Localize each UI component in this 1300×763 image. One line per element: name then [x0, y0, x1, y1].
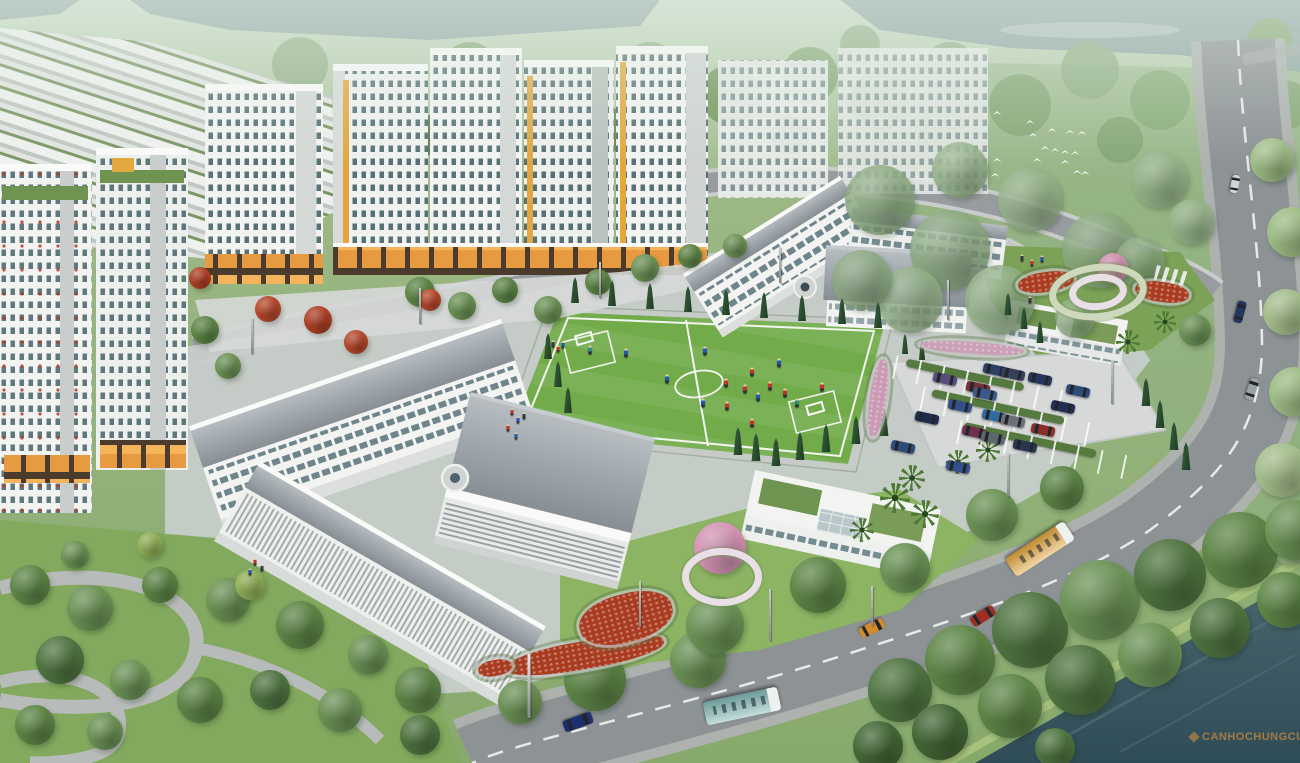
tree	[1060, 560, 1140, 640]
cypress	[771, 438, 781, 466]
cypress	[751, 433, 761, 461]
bird	[1071, 151, 1080, 155]
person	[517, 417, 520, 424]
bird	[1081, 171, 1090, 175]
player	[820, 383, 824, 392]
player	[624, 349, 628, 358]
car	[1065, 384, 1091, 399]
tree	[723, 234, 747, 258]
cypress	[851, 416, 861, 444]
car	[1233, 300, 1247, 324]
tree	[189, 267, 211, 289]
tree	[534, 296, 562, 324]
tree	[492, 277, 518, 303]
pole	[871, 586, 873, 626]
tree	[191, 316, 219, 344]
cypress	[564, 387, 573, 413]
player	[665, 375, 669, 384]
cypress	[684, 286, 693, 312]
cypress	[902, 334, 909, 354]
tree	[137, 532, 163, 558]
tree	[400, 715, 440, 755]
tree	[978, 674, 1042, 738]
bird	[1073, 170, 1082, 174]
bird	[1026, 120, 1035, 124]
cypress	[554, 361, 563, 387]
bird	[1051, 148, 1060, 152]
tree	[61, 541, 89, 569]
player	[777, 359, 781, 368]
tree	[1250, 138, 1294, 182]
player	[795, 399, 799, 408]
person	[511, 409, 514, 416]
tree	[1263, 289, 1300, 335]
pole	[639, 581, 641, 627]
player	[588, 346, 592, 355]
cypress	[1181, 442, 1191, 470]
tree	[1169, 199, 1215, 245]
car	[562, 711, 594, 733]
player	[768, 382, 772, 391]
pole	[769, 589, 771, 641]
tree	[1179, 314, 1211, 346]
bus	[702, 686, 781, 725]
car	[1229, 174, 1240, 193]
pole	[599, 262, 601, 298]
tree	[912, 704, 968, 760]
diamond-logo-icon	[1188, 731, 1199, 742]
tree	[215, 353, 241, 379]
bird	[1033, 158, 1042, 162]
bird	[1048, 128, 1057, 132]
palm	[899, 465, 925, 491]
bed	[920, 338, 1025, 357]
palm	[911, 500, 939, 528]
bird	[1029, 133, 1038, 137]
player	[703, 347, 707, 356]
person	[249, 569, 252, 576]
bird	[1041, 146, 1050, 150]
cypress	[722, 289, 731, 315]
cypress	[821, 424, 831, 452]
car	[1244, 377, 1259, 401]
pole	[1007, 453, 1009, 497]
tree	[498, 680, 542, 724]
tree	[631, 254, 659, 282]
tree	[1269, 367, 1300, 417]
tree	[880, 543, 930, 593]
cypress	[795, 432, 805, 460]
bird	[1078, 131, 1087, 135]
tree	[1267, 207, 1300, 257]
tree	[678, 244, 702, 268]
cypress	[760, 292, 769, 318]
person	[1029, 297, 1032, 304]
pole	[947, 280, 949, 320]
player	[756, 393, 760, 402]
bird	[993, 111, 1002, 115]
tree	[110, 660, 150, 700]
bird	[1066, 130, 1075, 134]
scene-objects-layer	[0, 0, 1300, 763]
pole	[779, 247, 781, 283]
tree	[304, 306, 332, 334]
person	[557, 346, 560, 353]
person	[515, 433, 518, 440]
tree	[87, 714, 123, 750]
tree	[36, 636, 84, 684]
bird	[1061, 160, 1070, 164]
pole	[251, 318, 253, 354]
tree	[1255, 443, 1300, 497]
bird	[1061, 150, 1070, 154]
pole	[419, 288, 421, 324]
person	[1021, 255, 1024, 262]
aerial-render-canvas: CANHOCHUNGCU.VN	[0, 0, 1300, 763]
tree	[177, 677, 223, 723]
tree	[1045, 645, 1115, 715]
tree	[419, 289, 441, 311]
tree	[1132, 152, 1188, 208]
tree	[1035, 728, 1075, 763]
tree	[845, 165, 915, 235]
tree	[966, 489, 1018, 541]
palm	[1154, 311, 1176, 333]
watermark-text: CANHOCHUNGCU.VN	[1202, 731, 1300, 743]
pole	[528, 654, 531, 718]
tree	[998, 168, 1062, 232]
player	[725, 402, 729, 411]
tree	[348, 635, 388, 675]
cypress	[646, 283, 655, 309]
cypress	[1169, 422, 1179, 450]
person	[1041, 256, 1044, 263]
tree	[448, 292, 476, 320]
palm	[1116, 330, 1140, 354]
player	[750, 368, 754, 377]
tree	[67, 585, 113, 631]
cypress	[1155, 400, 1165, 428]
cypress	[733, 427, 743, 455]
tree	[318, 688, 362, 732]
tree	[1257, 572, 1300, 628]
cypress	[798, 295, 807, 321]
tree	[10, 565, 50, 605]
tree	[1040, 466, 1084, 510]
cypress	[1141, 378, 1151, 406]
tree	[344, 330, 368, 354]
ring	[682, 548, 762, 606]
tree	[255, 296, 281, 322]
person	[254, 559, 257, 566]
person	[261, 565, 264, 572]
cypress	[1036, 321, 1044, 343]
tree	[250, 670, 290, 710]
player	[783, 389, 787, 398]
tree	[790, 557, 846, 613]
tree	[1134, 539, 1206, 611]
tree	[15, 705, 55, 745]
watermark: CANHOCHUNGCU.VN	[1190, 731, 1300, 743]
cypress	[571, 277, 580, 303]
person	[1031, 260, 1034, 267]
person	[523, 413, 526, 420]
bird	[993, 158, 1002, 162]
palm	[850, 518, 874, 542]
tree	[276, 601, 324, 649]
tree	[1118, 623, 1182, 687]
person	[507, 425, 510, 432]
bus	[1005, 521, 1076, 578]
bed	[477, 657, 513, 679]
player	[724, 379, 728, 388]
bird	[991, 173, 1000, 177]
tree	[142, 567, 178, 603]
car	[890, 440, 916, 455]
tree	[853, 721, 903, 763]
player	[750, 419, 754, 428]
tree	[932, 142, 988, 198]
player	[743, 385, 747, 394]
tree	[1190, 598, 1250, 658]
person	[552, 341, 555, 348]
tree	[585, 269, 611, 295]
player	[701, 399, 705, 408]
pole	[1111, 360, 1113, 404]
tree	[395, 667, 441, 713]
person	[562, 342, 565, 349]
